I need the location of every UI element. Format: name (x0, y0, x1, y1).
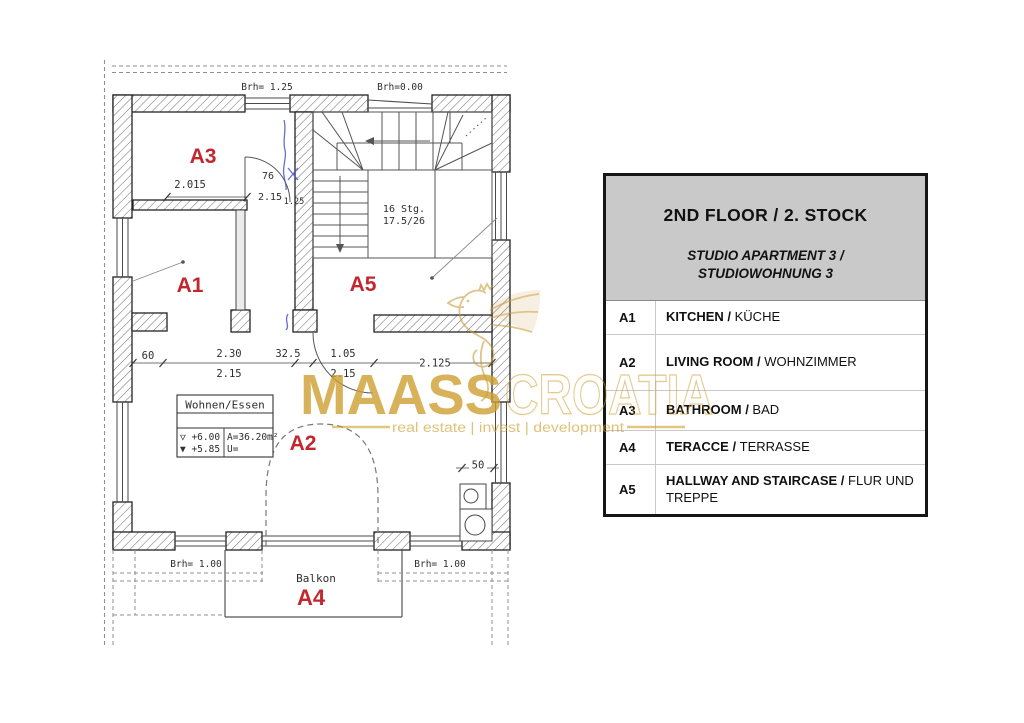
room-code: A5 (606, 482, 655, 497)
floorplan-page: 16 Stg. 17.5/26 (0, 0, 1024, 723)
legend-table: 2ND FLOOR / 2. STOCK STUDIO APARTMENT 3 … (603, 173, 928, 517)
legend-subtitle-line1: STUDIO APARTMENT 3 / (606, 247, 925, 265)
room-label-a5: A5 (350, 273, 377, 296)
room-name: KITCHEN / KÜCHE (655, 301, 925, 334)
leader-lines (133, 218, 497, 281)
walls (113, 95, 510, 550)
brh-bottom-right: Brh= 1.00 (414, 559, 466, 570)
stair-arrow-left (365, 137, 374, 145)
legend-title: 2ND FLOOR / 2. STOCK (606, 205, 925, 226)
svg-text:76: 76 (262, 171, 274, 182)
partition-wall (236, 210, 245, 310)
svg-text:2.15: 2.15 (258, 192, 282, 203)
brh-bottom-left: Brh= 1.00 (170, 559, 222, 570)
room-name: HALLWAY AND STAIRCASE / FLUR UND TREPPE (655, 465, 925, 514)
svg-text:Wohnen/Essen: Wohnen/Essen (185, 399, 264, 412)
room-code: A3 (606, 403, 655, 418)
svg-text:2.15: 2.15 (216, 368, 241, 380)
room-label-a4: A4 (297, 585, 326, 610)
svg-text:A=36.20m²: A=36.20m² (227, 432, 278, 443)
legend-row-a4: A4 TERACCE / TERRASSE (606, 431, 925, 465)
svg-text:1.05: 1.05 (330, 348, 355, 360)
room-code: A4 (606, 440, 655, 455)
svg-text:▼ +5.85: ▼ +5.85 (180, 444, 220, 455)
legend-row-a2: A2 LIVING ROOM / WOHNZIMMER (606, 335, 925, 391)
living-room-dashed-arch (266, 424, 378, 546)
stair-count: 16 Stg. (383, 204, 425, 215)
room-name: BATHROOM / BAD (655, 391, 925, 430)
brh-top-left: Brh= 1.25 (241, 82, 292, 93)
legend-header: 2ND FLOOR / 2. STOCK STUDIO APARTMENT 3 … (606, 176, 925, 301)
balkon-label: Balkon (296, 572, 336, 585)
room-name: TERACCE / TERRASSE (655, 431, 925, 464)
legend-row-a3: A3 BATHROOM / BAD (606, 391, 925, 431)
svg-text:2.15: 2.15 (330, 368, 355, 380)
staircase (313, 112, 492, 258)
room-label-a3: A3 (190, 145, 217, 168)
svg-text:2.30: 2.30 (216, 348, 241, 360)
svg-text:50: 50 (472, 460, 485, 472)
room-code: A2 (606, 355, 655, 370)
stair-rise-run: 17.5/26 (383, 216, 425, 227)
stair-arrow-down (336, 244, 344, 253)
svg-text:60: 60 (142, 350, 155, 362)
room-label-a2: A2 (290, 432, 317, 455)
legend-subtitle-line2: STUDIOWOHNUNG 3 (606, 265, 925, 283)
room-label-a1: A1 (177, 274, 204, 297)
legend-subtitle: STUDIO APARTMENT 3 / STUDIOWOHNUNG 3 (606, 247, 925, 282)
room-code: A1 (606, 310, 655, 325)
legend-rows: A1 KITCHEN / KÜCHE A2 LIVING ROOM / WOHN… (606, 301, 925, 514)
a3-dimension: 2.015 (164, 179, 251, 201)
room-info-box: Wohnen/Essen ▽ +6.00 ▼ +5.85 A=36.20m² U… (177, 395, 278, 457)
brh-top-right: Brh=0.00 (377, 82, 423, 93)
svg-text:2.125: 2.125 (419, 358, 451, 370)
svg-text:32.5: 32.5 (275, 348, 300, 360)
svg-text:U=: U= (227, 444, 239, 455)
svg-text:2.015: 2.015 (174, 179, 206, 191)
dimension-chain: 60 2.30 32.5 1.05 2.125 2.15 2.15 (130, 348, 496, 380)
svg-text:1.25: 1.25 (284, 197, 304, 207)
legend-row-a1: A1 KITCHEN / KÜCHE (606, 301, 925, 335)
legend-row-a5: A5 HALLWAY AND STAIRCASE / FLUR UND TREP… (606, 465, 925, 514)
room-name: LIVING ROOM / WOHNZIMMER (655, 335, 925, 390)
svg-text:▽ +6.00: ▽ +6.00 (180, 432, 220, 443)
